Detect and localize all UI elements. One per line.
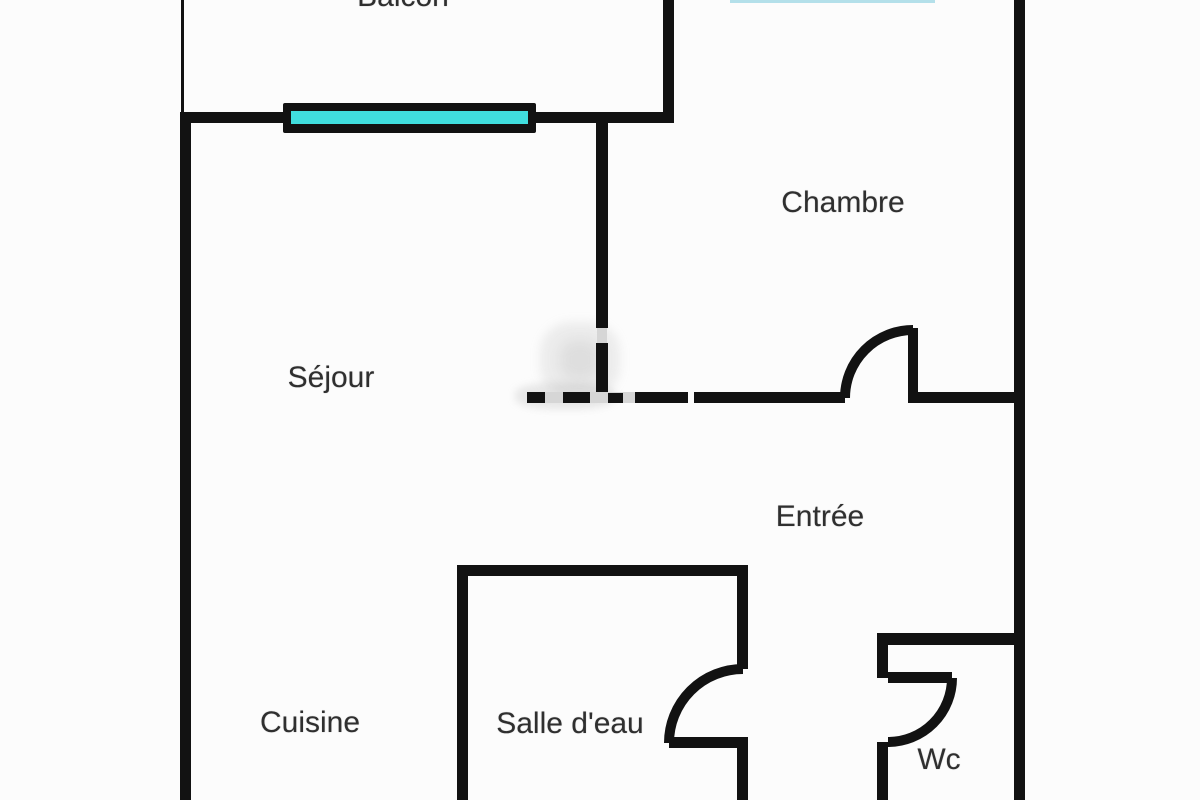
floor-plan: Balcon Chambre Séjour Entrée Cuisine Sal… bbox=[0, 0, 1200, 800]
room-label-balcon: Balcon bbox=[303, 0, 503, 14]
salle-deau-door-arc bbox=[669, 669, 743, 743]
room-label-wc: Wc bbox=[839, 743, 1039, 777]
room-label-entree: Entrée bbox=[720, 500, 920, 534]
room-label-sejour: Séjour bbox=[231, 361, 431, 395]
chambre-door-arc bbox=[845, 330, 913, 398]
room-label-chambre: Chambre bbox=[743, 186, 943, 220]
room-label-salle-deau: Salle d'eau bbox=[470, 707, 670, 741]
wc-door-arc bbox=[888, 678, 952, 742]
room-label-cuisine: Cuisine bbox=[210, 706, 410, 740]
door-arcs bbox=[0, 0, 1200, 800]
